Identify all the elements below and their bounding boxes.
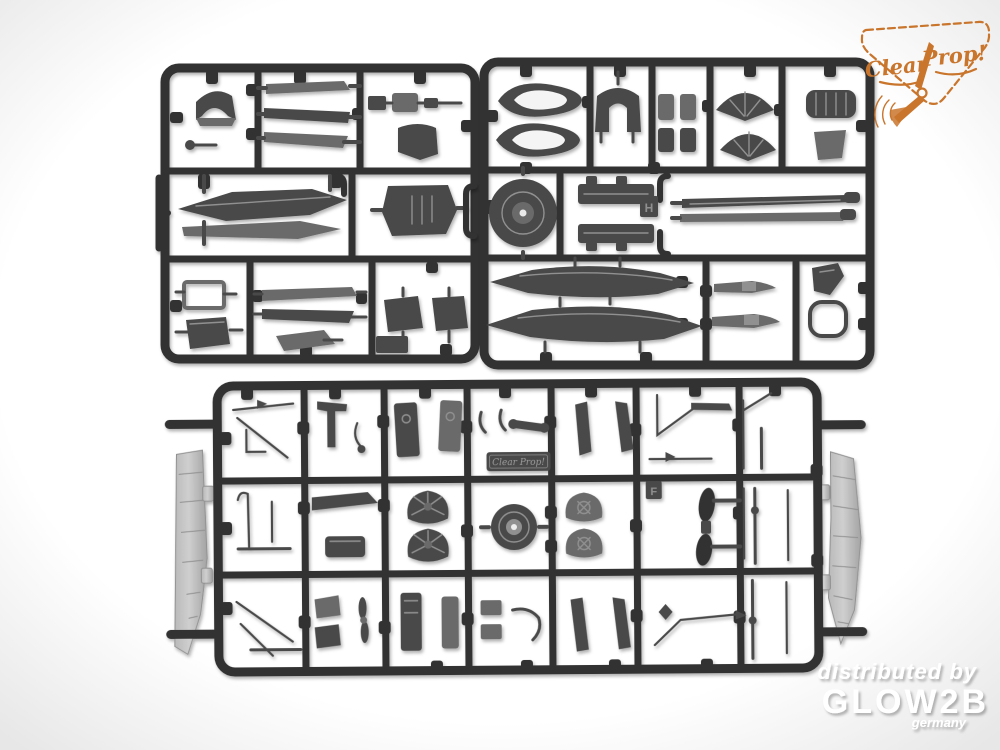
watermark-country: germany <box>911 715 967 730</box>
h-marker-plate: H <box>640 196 658 217</box>
f-marker-text: F <box>650 486 657 498</box>
f-marker-plate: F <box>646 481 662 499</box>
h-marker-text: H <box>645 201 654 215</box>
product-photo: H <box>0 0 1000 750</box>
watermark-line1: distributed by <box>818 659 978 684</box>
embossed-brand-text: Clear Prop! <box>492 458 545 468</box>
embossed-brand-plate: Clear Prop! <box>486 452 550 471</box>
distributor-watermark: distributed by GLOW2B germany <box>818 659 989 730</box>
